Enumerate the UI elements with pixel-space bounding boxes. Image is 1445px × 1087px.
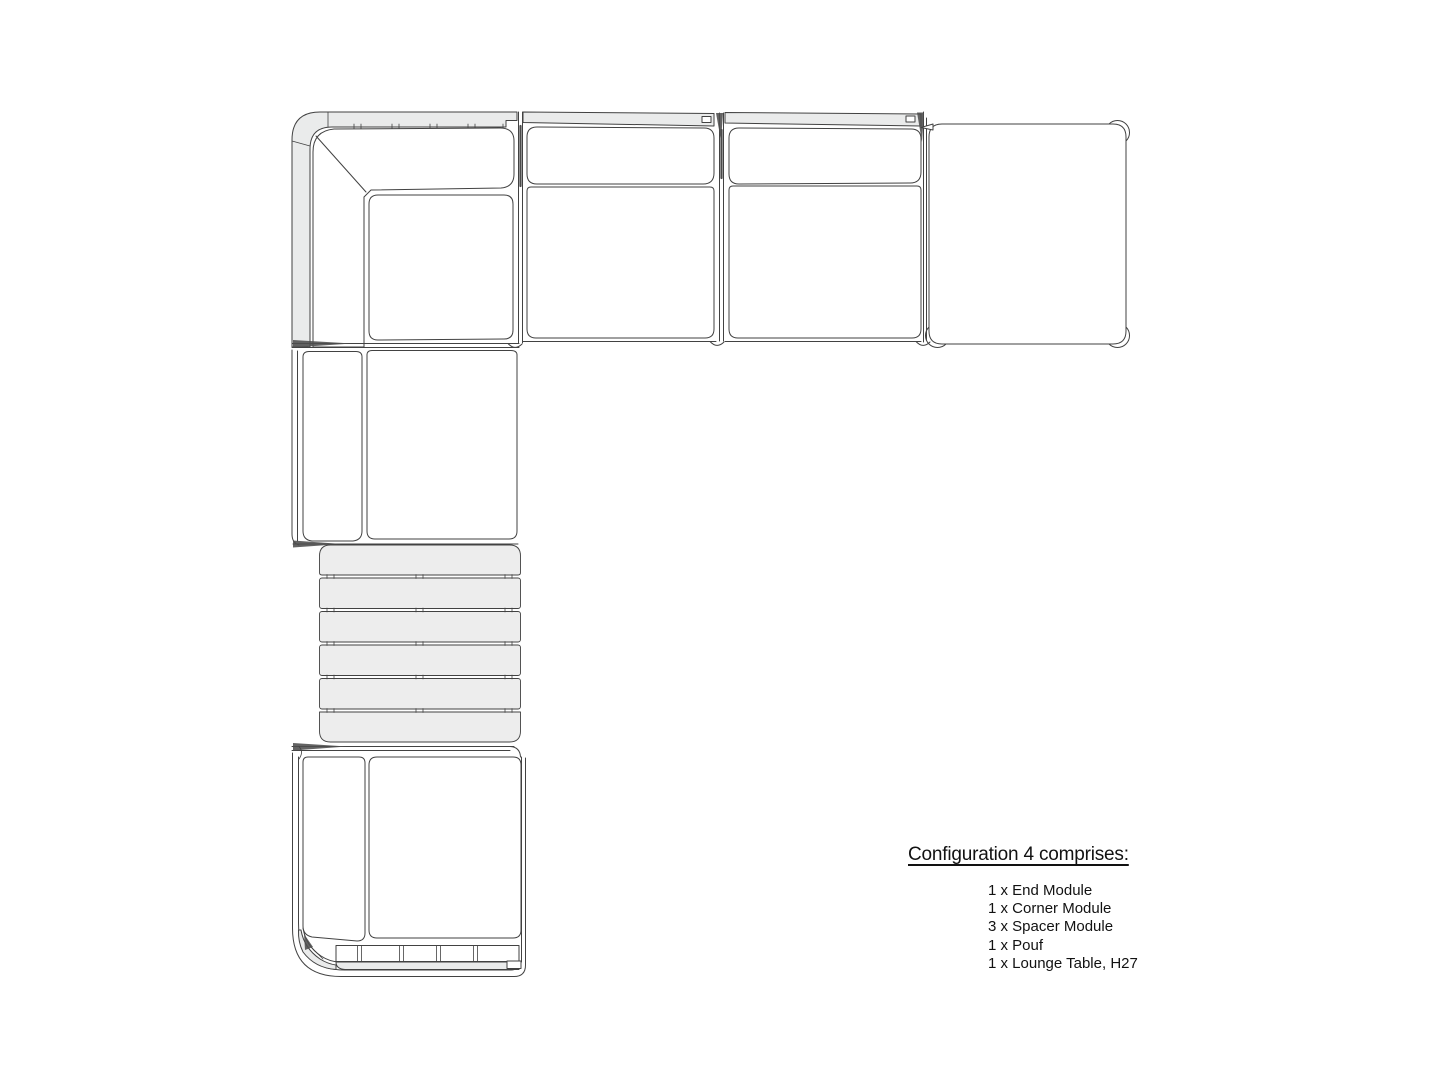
lounge-table-drawing bbox=[320, 545, 521, 742]
spacer-module-2-drawing bbox=[725, 113, 930, 346]
page: Configuration 4 comprises: 1 x End Modul… bbox=[0, 0, 1445, 1087]
sofa-configuration-diagram bbox=[0, 0, 1445, 1087]
spacer-module-3-drawing bbox=[292, 350, 518, 548]
legend-item: 1 x End Module bbox=[988, 882, 1138, 900]
legend-item: 1 x Pouf bbox=[988, 937, 1138, 955]
module-junction-1 bbox=[519, 112, 523, 343]
legend-item: 1 x Corner Module bbox=[988, 900, 1138, 918]
legend-items: 1 x End Module 1 x Corner Module 3 x Spa… bbox=[988, 882, 1138, 973]
pouf-drawing bbox=[921, 120, 1130, 347]
legend-item: 1 x Lounge Table, H27 bbox=[988, 955, 1138, 973]
legend-item: 3 x Spacer Module bbox=[988, 918, 1138, 936]
legend: Configuration 4 comprises: 1 x End Modul… bbox=[908, 844, 1138, 973]
end-module-drawing bbox=[292, 743, 526, 977]
legend-title: Configuration 4 comprises: bbox=[908, 844, 1138, 866]
module-junction-2 bbox=[716, 113, 724, 341]
corner-module-drawing bbox=[292, 112, 522, 348]
spacer-module-1-drawing bbox=[523, 112, 724, 345]
